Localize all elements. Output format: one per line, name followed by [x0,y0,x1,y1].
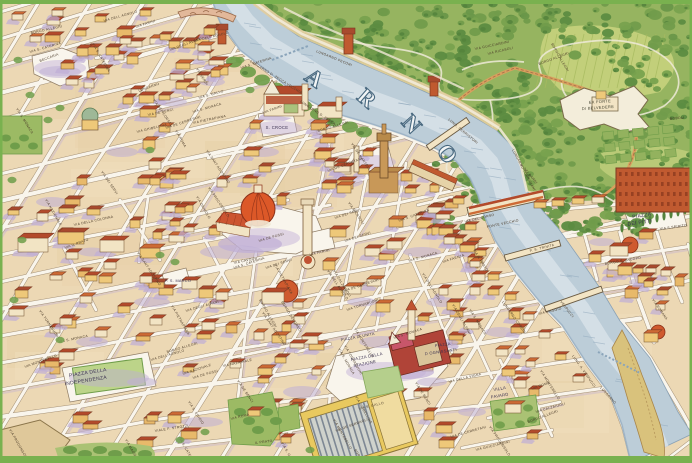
svg-text:S. CROCE: S. CROCE [266,125,289,130]
svg-text:P. S. MARCO: P. S. MARCO [165,279,191,283]
